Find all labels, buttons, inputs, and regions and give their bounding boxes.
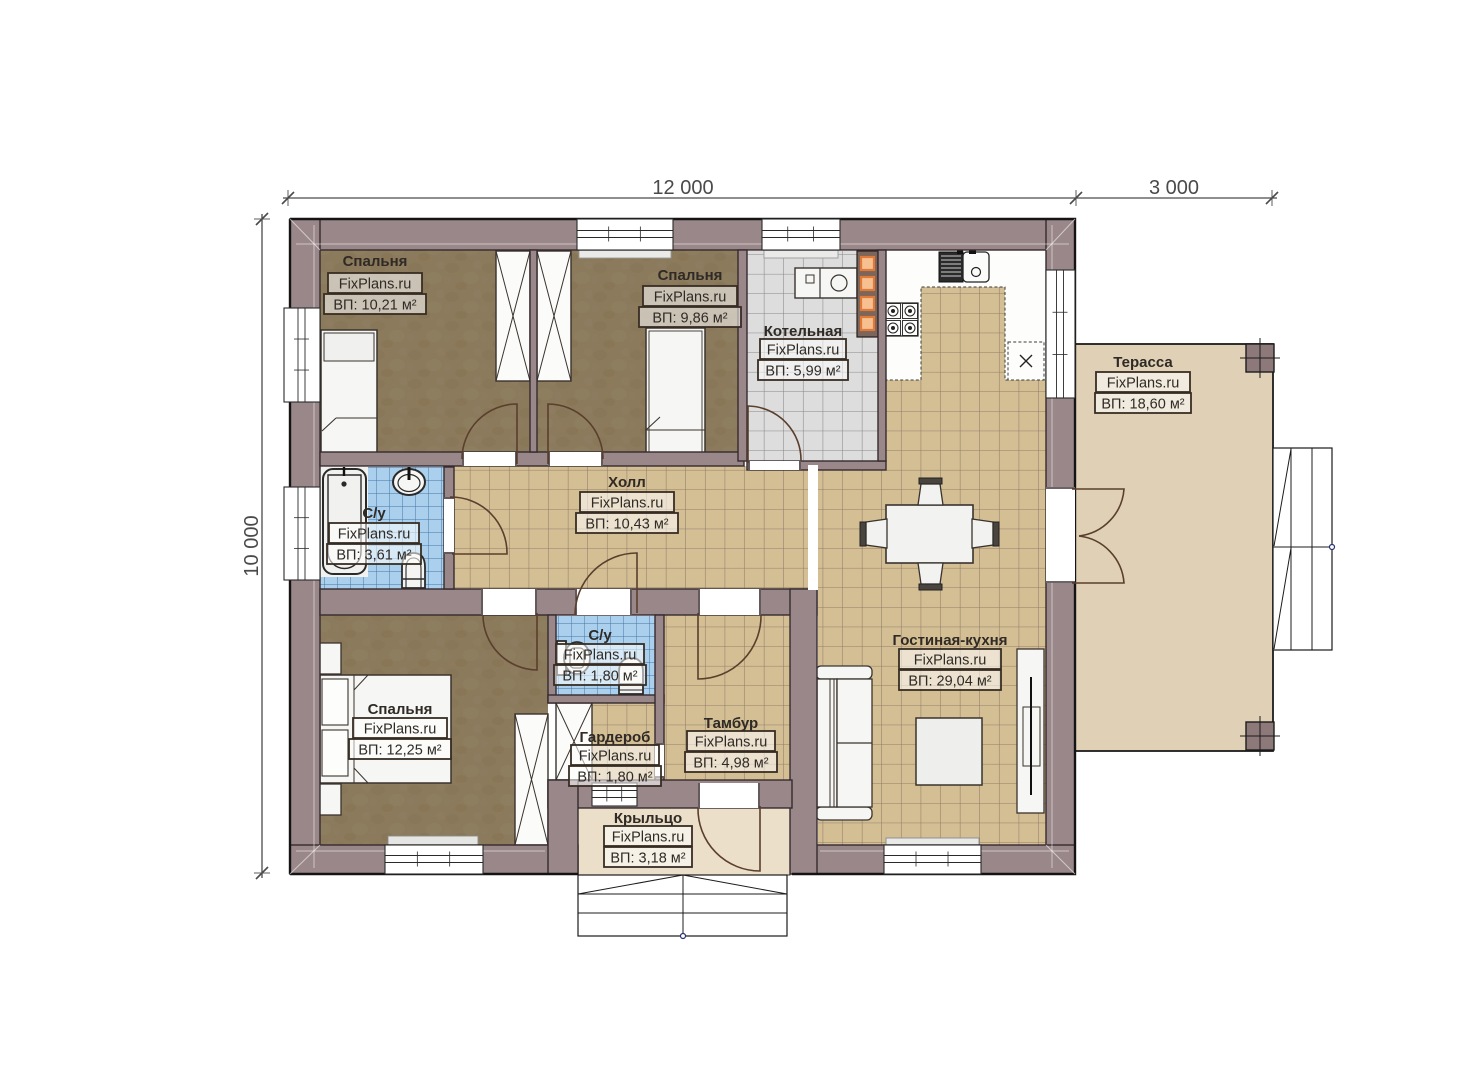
svg-text:Крыльцо: Крыльцо: [614, 810, 682, 827]
svg-text:Холл: Холл: [608, 474, 646, 491]
svg-text:FixPlans.ru: FixPlans.ru: [1107, 376, 1180, 392]
svg-text:ВП: 18,60 м²: ВП: 18,60 м²: [1101, 397, 1184, 413]
svg-text:С/у: С/у: [588, 627, 612, 644]
svg-text:ВП: 5,99 м²: ВП: 5,99 м²: [765, 364, 840, 380]
svg-text:FixPlans.ru: FixPlans.ru: [654, 290, 727, 306]
svg-text:ВП: 10,43 м²: ВП: 10,43 м²: [585, 517, 668, 533]
svg-text:Тамбур: Тамбур: [704, 715, 758, 732]
svg-text:ВП: 1,80 м²: ВП: 1,80 м²: [577, 770, 652, 786]
svg-text:12 000: 12 000: [652, 177, 713, 199]
svg-text:FixPlans.ru: FixPlans.ru: [339, 277, 412, 293]
svg-text:Терасса: Терасса: [1113, 354, 1173, 371]
svg-text:ВП: 9,86 м²: ВП: 9,86 м²: [652, 311, 727, 327]
svg-text:ВП: 10,21 м²: ВП: 10,21 м²: [333, 298, 416, 314]
svg-text:ВП: 4,98 м²: ВП: 4,98 м²: [693, 756, 768, 772]
svg-text:FixPlans.ru: FixPlans.ru: [612, 830, 685, 846]
svg-text:FixPlans.ru: FixPlans.ru: [338, 527, 411, 543]
svg-text:FixPlans.ru: FixPlans.ru: [591, 496, 664, 512]
svg-text:ВП: 12,25 м²: ВП: 12,25 м²: [358, 743, 441, 759]
svg-text:Гардероб: Гардероб: [580, 729, 651, 746]
svg-text:Гостиная-кухня: Гостиная-кухня: [893, 632, 1008, 649]
svg-text:Спальня: Спальня: [368, 701, 433, 718]
svg-text:Котельная: Котельная: [764, 323, 843, 340]
svg-text:ВП: 29,04 м²: ВП: 29,04 м²: [908, 674, 991, 690]
svg-text:FixPlans.ru: FixPlans.ru: [914, 653, 987, 669]
svg-text:ВП: 3,61 м²: ВП: 3,61 м²: [336, 548, 411, 564]
svg-text:Спальня: Спальня: [343, 253, 408, 270]
svg-text:Спальня: Спальня: [658, 267, 723, 284]
svg-text:ВП: 1,80 м²: ВП: 1,80 м²: [562, 669, 637, 685]
svg-text:ВП: 3,18 м²: ВП: 3,18 м²: [610, 851, 685, 867]
svg-text:FixPlans.ru: FixPlans.ru: [364, 722, 437, 738]
svg-text:10 000: 10 000: [241, 515, 263, 576]
svg-text:FixPlans.ru: FixPlans.ru: [579, 749, 652, 765]
svg-text:FixPlans.ru: FixPlans.ru: [767, 343, 840, 359]
svg-text:3 000: 3 000: [1149, 177, 1199, 199]
svg-text:С/у: С/у: [362, 505, 386, 522]
svg-text:FixPlans.ru: FixPlans.ru: [564, 648, 637, 664]
svg-text:FixPlans.ru: FixPlans.ru: [695, 735, 768, 751]
